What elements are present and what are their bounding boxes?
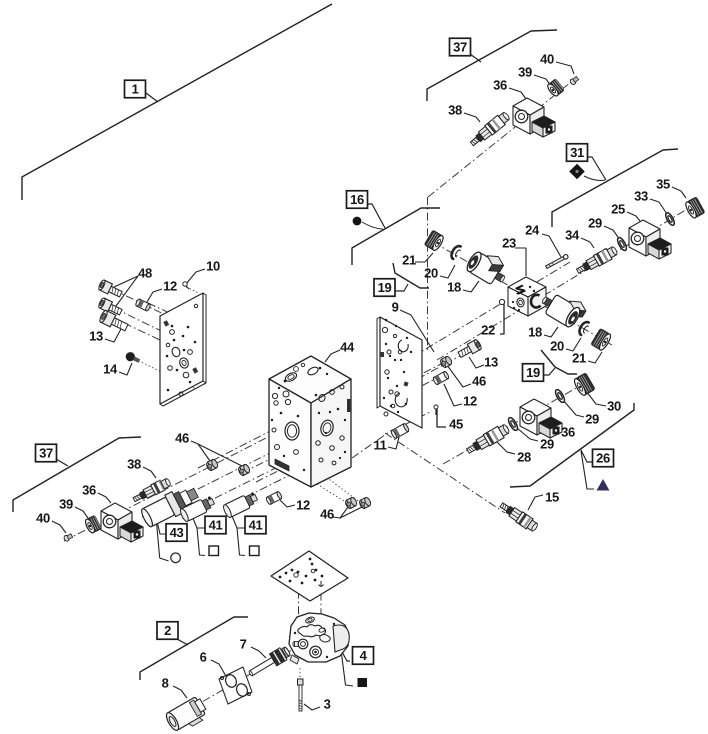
svg-text:44: 44 [340, 340, 355, 355]
svg-text:46: 46 [320, 507, 334, 522]
svg-text:41: 41 [209, 518, 223, 533]
svg-text:45: 45 [449, 417, 463, 432]
svg-text:4: 4 [360, 648, 368, 663]
svg-text:25: 25 [611, 202, 625, 217]
svg-text:24: 24 [525, 223, 540, 238]
svg-text:19: 19 [378, 280, 392, 295]
svg-text:38: 38 [127, 457, 141, 472]
svg-text:6: 6 [200, 650, 207, 665]
svg-text:18: 18 [447, 280, 461, 295]
svg-text:13: 13 [484, 355, 498, 370]
svg-text:29: 29 [540, 437, 554, 452]
svg-text:21: 21 [572, 351, 586, 366]
svg-text:23: 23 [502, 236, 516, 251]
svg-text:18: 18 [528, 325, 542, 340]
svg-text:46: 46 [472, 374, 486, 389]
svg-text:20: 20 [424, 266, 438, 281]
svg-text:9: 9 [392, 300, 399, 315]
svg-text:10: 10 [206, 259, 220, 274]
svg-text:2: 2 [164, 623, 171, 638]
svg-text:7: 7 [240, 637, 247, 652]
svg-text:40: 40 [36, 511, 50, 526]
svg-text:40: 40 [540, 52, 554, 67]
svg-text:20: 20 [550, 339, 564, 354]
svg-text:12: 12 [163, 279, 177, 294]
svg-text:11: 11 [374, 438, 387, 453]
svg-text:29: 29 [585, 412, 599, 427]
svg-text:35: 35 [656, 177, 670, 192]
svg-text:29: 29 [588, 216, 602, 231]
svg-text:41: 41 [249, 518, 263, 533]
svg-text:16: 16 [350, 192, 364, 207]
svg-text:12: 12 [296, 498, 310, 513]
svg-text:36: 36 [82, 483, 96, 498]
svg-text:43: 43 [170, 525, 184, 540]
svg-text:21: 21 [402, 253, 416, 268]
svg-text:39: 39 [59, 497, 73, 512]
svg-text:36: 36 [493, 78, 507, 93]
svg-text:33: 33 [634, 189, 648, 204]
svg-text:46: 46 [175, 431, 189, 446]
svg-text:19: 19 [526, 365, 540, 380]
svg-text:38: 38 [448, 103, 462, 118]
svg-text:1: 1 [132, 82, 139, 97]
svg-text:12: 12 [463, 394, 477, 409]
svg-text:34: 34 [565, 228, 580, 243]
svg-text:22: 22 [481, 323, 495, 338]
svg-text:28: 28 [517, 450, 531, 465]
svg-text:14: 14 [103, 362, 118, 377]
svg-text:37: 37 [39, 446, 53, 461]
svg-text:15: 15 [545, 490, 559, 505]
svg-text:3: 3 [324, 697, 331, 712]
svg-text:39: 39 [518, 65, 532, 80]
svg-text:31: 31 [570, 145, 584, 160]
svg-text:8: 8 [162, 676, 169, 691]
svg-text:37: 37 [453, 40, 467, 55]
svg-text:48: 48 [138, 266, 152, 281]
svg-text:26: 26 [596, 451, 610, 466]
svg-text:13: 13 [89, 329, 103, 344]
svg-text:36: 36 [561, 425, 575, 440]
svg-text:30: 30 [607, 399, 621, 414]
